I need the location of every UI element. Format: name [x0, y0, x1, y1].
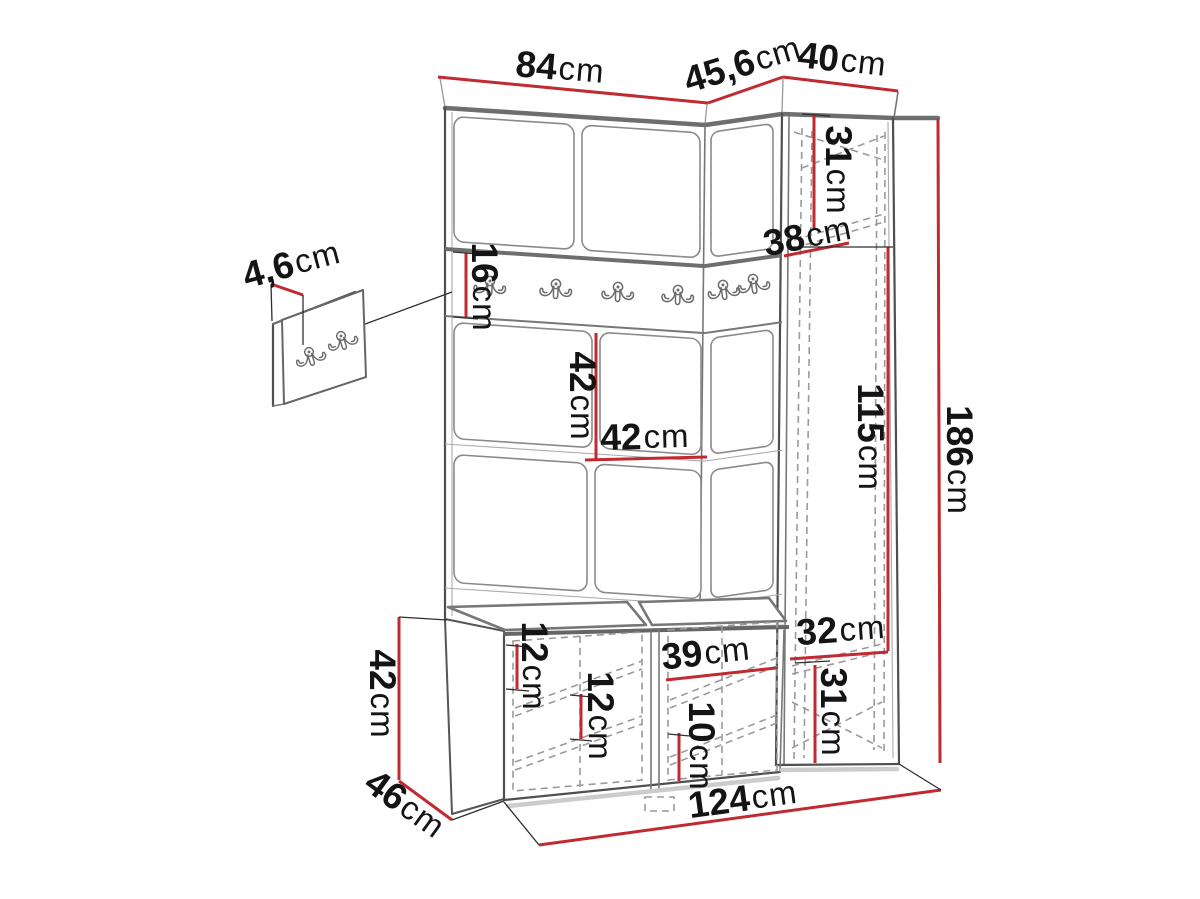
- padded-panel: [711, 461, 773, 598]
- dim-label-bench-bottom-gap: 10cm: [681, 701, 722, 790]
- cabinet-bottom-edge: [776, 764, 899, 765]
- dim-label-bench-height: 42cm: [362, 649, 403, 738]
- coat-hook-icon: [662, 285, 694, 305]
- coat-hook-icon: [737, 272, 771, 295]
- dim-label-cabinet-width: 40cm: [796, 34, 889, 85]
- dim-label-bench-middle-gap: 12cm: [580, 671, 621, 760]
- coat-hook-icon: [707, 278, 741, 301]
- furniture-dimension-diagram: 84cm 45,6cm 40cm 31cm 38cm 16cm 42cm 42c…: [0, 0, 1200, 899]
- detail-panel-face: [282, 290, 366, 404]
- padded-panel: [595, 464, 701, 599]
- seat-cushion: [639, 598, 786, 625]
- hook-panel-detail: [273, 290, 452, 406]
- coat-hook-icon: [540, 279, 572, 299]
- hook-rail-hooks: [474, 272, 771, 305]
- detail-leader-line: [357, 292, 452, 327]
- dim-label-bench-top-gap: 12cm: [514, 621, 555, 710]
- bench-foot: [645, 797, 674, 811]
- corner-edge: [776, 114, 782, 765]
- padded-panel: [454, 117, 574, 250]
- padded-panel: [454, 455, 587, 592]
- dim-label-panel-thickness: 4,6cm: [238, 231, 345, 296]
- dim-label-bench-depth: 46cm: [357, 761, 453, 847]
- dim-label-total-height: 186cm: [939, 405, 980, 515]
- dim-label-cabinet-shelf-depth: 32cm: [795, 606, 887, 653]
- bench-side-face: [445, 619, 504, 814]
- coat-hook-icon: [602, 282, 634, 302]
- dim-label-cabinet-depth: 38cm: [760, 207, 855, 264]
- floor-shadow: [782, 769, 897, 770]
- dim-label-front-width: 84cm: [514, 43, 606, 92]
- dim-label-bench-shelf-width: 39cm: [659, 627, 752, 677]
- dim-label-cabinet-top-section: 31cm: [818, 125, 859, 214]
- dim-label-panel-height: 42cm: [562, 351, 603, 440]
- padded-panel: [582, 125, 700, 258]
- corner-face: [705, 122, 782, 605]
- dim-label-hook-rail-height: 16cm: [464, 242, 505, 331]
- cabinet-left-edge: [784, 117, 789, 764]
- cabinet-right-edge: [893, 118, 899, 764]
- detail-panel-bottom-joint: [273, 404, 284, 406]
- dim-label-panel-width: 42cm: [600, 415, 690, 458]
- dim-label-cabinet-middle-section: 115cm: [850, 383, 891, 491]
- dim-label-cabinet-bottom-section: 31cm: [813, 667, 854, 756]
- padded-panel: [711, 329, 773, 454]
